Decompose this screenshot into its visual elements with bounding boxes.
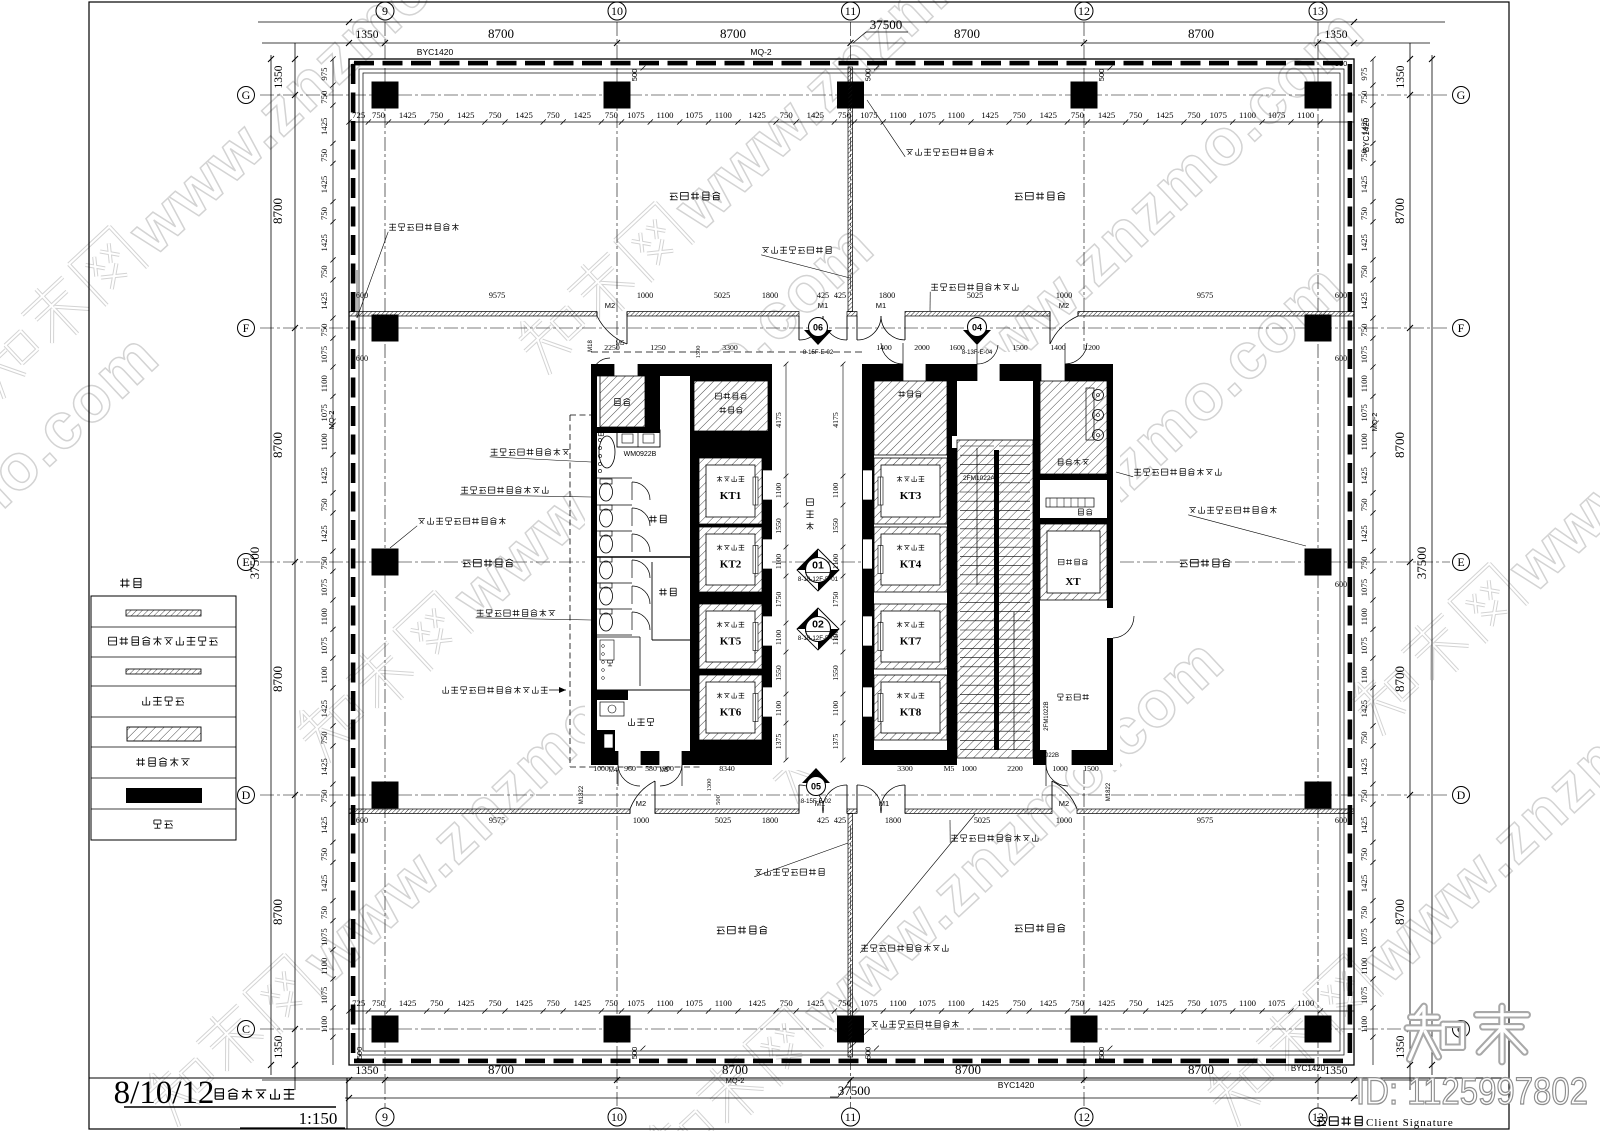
svg-text:1000: 1000 <box>593 764 609 773</box>
svg-text:1100: 1100 <box>1359 375 1369 393</box>
svg-text:1100: 1100 <box>319 666 329 684</box>
svg-text:1100: 1100 <box>1359 608 1369 626</box>
svg-text:D: D <box>1457 788 1466 802</box>
svg-text:750: 750 <box>488 110 502 120</box>
svg-text:750: 750 <box>372 998 386 1008</box>
svg-text:XT: XT <box>1065 576 1081 588</box>
svg-text:975: 975 <box>1359 68 1369 81</box>
svg-text:425: 425 <box>817 291 829 300</box>
svg-text:D: D <box>242 788 251 802</box>
svg-text:750: 750 <box>547 110 561 120</box>
svg-text:1550: 1550 <box>831 665 840 681</box>
svg-text:750: 750 <box>1359 556 1369 570</box>
svg-text:1425: 1425 <box>1359 176 1369 193</box>
svg-text:2FM1022A: 2FM1022A <box>963 475 995 482</box>
svg-text:750: 750 <box>1359 206 1369 220</box>
svg-text:1425: 1425 <box>807 110 824 120</box>
svg-text:1075: 1075 <box>685 998 702 1008</box>
svg-text:1100: 1100 <box>319 957 329 975</box>
svg-text:1075: 1075 <box>1268 110 1285 120</box>
svg-text:1425: 1425 <box>981 110 998 120</box>
svg-text:M1: M1 <box>818 301 828 310</box>
svg-text:500: 500 <box>1335 59 1348 68</box>
svg-text:1000: 1000 <box>633 816 649 825</box>
svg-text:600: 600 <box>356 354 368 363</box>
svg-text:1100: 1100 <box>774 630 783 645</box>
svg-text:1800: 1800 <box>885 816 901 825</box>
svg-text:750: 750 <box>1187 998 1201 1008</box>
svg-text:04: 04 <box>972 323 982 333</box>
svg-text:750: 750 <box>1359 847 1369 861</box>
svg-text:1425: 1425 <box>1359 758 1369 775</box>
svg-text:1100: 1100 <box>948 998 966 1008</box>
svg-text:900: 900 <box>662 764 674 773</box>
svg-text:BYC1420: BYC1420 <box>998 1080 1035 1090</box>
svg-text:1425: 1425 <box>457 998 474 1008</box>
svg-text:M1: M1 <box>876 301 886 310</box>
svg-text:1075: 1075 <box>319 579 329 596</box>
svg-text:8700: 8700 <box>1392 198 1407 224</box>
svg-text:600: 600 <box>1335 580 1347 589</box>
svg-text:1350: 1350 <box>273 1035 285 1058</box>
svg-text:750: 750 <box>319 265 329 279</box>
svg-text:1100: 1100 <box>1297 110 1315 120</box>
svg-text:1425: 1425 <box>319 700 329 717</box>
svg-text:8700: 8700 <box>1188 1062 1214 1077</box>
svg-text:1075: 1075 <box>918 110 935 120</box>
svg-text:1550: 1550 <box>831 518 840 534</box>
svg-text:1075: 1075 <box>1359 404 1369 421</box>
svg-text:960: 960 <box>624 764 636 773</box>
svg-text:1075: 1075 <box>627 998 644 1008</box>
svg-text:8-15F-E-02: 8-15F-E-02 <box>803 350 834 356</box>
svg-text:750: 750 <box>319 789 329 803</box>
svg-text:1350: 1350 <box>273 65 285 88</box>
svg-text:750: 750 <box>605 998 619 1008</box>
svg-text:1425: 1425 <box>319 292 329 309</box>
svg-text:1100: 1100 <box>1359 957 1369 975</box>
svg-text:8-10-12F-E-01: 8-10-12F-E-01 <box>798 576 839 583</box>
svg-text:1400: 1400 <box>876 343 892 352</box>
svg-text:500: 500 <box>715 795 722 805</box>
svg-text:750: 750 <box>1129 110 1143 120</box>
svg-text:1425: 1425 <box>515 110 532 120</box>
svg-text:1750: 1750 <box>774 592 783 608</box>
svg-text:5025: 5025 <box>967 291 983 300</box>
svg-text:1100: 1100 <box>1239 110 1257 120</box>
svg-text:1075: 1075 <box>1359 987 1369 1004</box>
svg-text:1100: 1100 <box>1359 666 1369 684</box>
svg-text:750: 750 <box>1071 998 1085 1008</box>
svg-text:1100: 1100 <box>1359 1015 1369 1033</box>
svg-text:8-15F-E-02: 8-15F-E-02 <box>801 799 832 805</box>
svg-text:MQ-2: MQ-2 <box>750 47 772 57</box>
svg-text:1075: 1075 <box>918 998 935 1008</box>
svg-text:12: 12 <box>1078 1110 1090 1124</box>
svg-text:1425: 1425 <box>319 758 329 775</box>
svg-text:M2: M2 <box>605 301 615 310</box>
svg-text:9575: 9575 <box>489 291 505 300</box>
svg-text:1100: 1100 <box>1359 433 1369 451</box>
svg-text:500: 500 <box>1097 1047 1106 1060</box>
svg-text:1100: 1100 <box>319 375 329 393</box>
svg-text:1000: 1000 <box>1056 291 1072 300</box>
svg-text:1425: 1425 <box>319 118 329 135</box>
svg-text:M2: M2 <box>636 799 646 808</box>
svg-text:750: 750 <box>319 556 329 570</box>
svg-text:750: 750 <box>488 998 502 1008</box>
svg-text:8340: 8340 <box>719 764 735 773</box>
svg-text:M2: M2 <box>1059 301 1069 310</box>
svg-text:KT8: KT8 <box>900 707 922 719</box>
svg-text:750: 750 <box>319 148 329 162</box>
svg-text:750: 750 <box>1013 998 1027 1008</box>
svg-text:1375: 1375 <box>831 734 840 750</box>
svg-text:8-10-12F-E-02: 8-10-12F-E-02 <box>798 635 839 642</box>
svg-text:M4: M4 <box>608 767 617 774</box>
svg-text:11: 11 <box>845 1110 857 1124</box>
svg-text:1100: 1100 <box>715 110 733 120</box>
svg-text:8700: 8700 <box>270 432 285 458</box>
svg-text:1100: 1100 <box>774 701 783 716</box>
svg-text:1425: 1425 <box>1359 875 1369 892</box>
svg-text:1800: 1800 <box>879 291 895 300</box>
svg-text:500: 500 <box>864 1047 873 1060</box>
svg-text:750: 750 <box>319 731 329 745</box>
svg-text:11: 11 <box>845 4 857 18</box>
svg-text:750: 750 <box>319 323 329 337</box>
svg-text:1100: 1100 <box>319 433 329 451</box>
svg-text:KT5: KT5 <box>720 636 742 648</box>
svg-text:750: 750 <box>780 998 794 1008</box>
svg-text:M5: M5 <box>944 764 955 773</box>
svg-text:750: 750 <box>1359 90 1369 104</box>
svg-text:WM0922B: WM0922B <box>624 451 657 458</box>
svg-text:M1822: M1822 <box>1106 782 1112 801</box>
svg-text:Client Signature: Client Signature <box>1366 1117 1454 1129</box>
svg-text:8700: 8700 <box>488 1062 514 1077</box>
svg-text:9575: 9575 <box>489 816 505 825</box>
svg-text:750: 750 <box>319 498 329 512</box>
svg-text:1000: 1000 <box>637 291 653 300</box>
svg-text:1425: 1425 <box>1359 525 1369 542</box>
svg-text:1425: 1425 <box>1359 817 1369 834</box>
svg-text:1075: 1075 <box>319 346 329 363</box>
svg-text:8700: 8700 <box>722 1062 748 1077</box>
svg-text:750: 750 <box>605 110 619 120</box>
svg-text:750: 750 <box>1359 905 1369 919</box>
svg-text:1000: 1000 <box>1056 816 1072 825</box>
svg-text:1100: 1100 <box>319 1015 329 1033</box>
svg-text:M1822: M1822 <box>579 785 585 804</box>
svg-text:600: 600 <box>1335 816 1347 825</box>
svg-text:1425: 1425 <box>1156 998 1173 1008</box>
svg-text:MQ-2: MQ-2 <box>1370 413 1379 432</box>
svg-text:1100: 1100 <box>889 110 907 120</box>
svg-text:8700: 8700 <box>1188 26 1214 41</box>
svg-text:1100: 1100 <box>1239 998 1257 1008</box>
svg-text:1500: 1500 <box>1083 764 1099 773</box>
svg-text:5025: 5025 <box>974 816 990 825</box>
svg-text:750: 750 <box>1071 110 1085 120</box>
svg-text:9575: 9575 <box>1197 816 1213 825</box>
svg-text:8700: 8700 <box>1392 666 1407 692</box>
svg-text:ID: 1125997802: ID: 1125997802 <box>1356 1071 1588 1113</box>
svg-text:1350: 1350 <box>356 29 379 41</box>
svg-text:750: 750 <box>1359 498 1369 512</box>
svg-text:750: 750 <box>319 847 329 861</box>
svg-text:750: 750 <box>1187 110 1201 120</box>
svg-text:1000: 1000 <box>1052 764 1068 773</box>
svg-text:1425: 1425 <box>1040 110 1057 120</box>
svg-text:9575: 9575 <box>1197 291 1213 300</box>
svg-text:KT6: KT6 <box>720 707 742 719</box>
svg-text:F: F <box>243 321 250 335</box>
svg-text:8/10/12: 8/10/12 <box>114 1075 215 1111</box>
svg-text:01: 01 <box>812 560 824 572</box>
svg-text:1425: 1425 <box>1040 998 1057 1008</box>
svg-text:750: 750 <box>319 905 329 919</box>
svg-text:8700: 8700 <box>720 26 746 41</box>
svg-text:G: G <box>242 88 251 102</box>
svg-text:1300: 1300 <box>706 779 713 792</box>
svg-text:06: 06 <box>813 323 823 333</box>
svg-text:1100: 1100 <box>831 701 840 716</box>
svg-text:BYC1420: BYC1420 <box>1362 117 1371 152</box>
svg-text:1:150: 1:150 <box>299 1109 338 1128</box>
svg-text:750: 750 <box>1359 789 1369 803</box>
svg-text:2FM1022B: 2FM1022B <box>1044 701 1050 730</box>
svg-text:1425: 1425 <box>1098 110 1115 120</box>
svg-text:1075: 1075 <box>1359 579 1369 596</box>
svg-text:1100: 1100 <box>656 110 674 120</box>
svg-text:5025: 5025 <box>714 291 730 300</box>
svg-text:1425: 1425 <box>748 110 765 120</box>
svg-text:1425: 1425 <box>1359 700 1369 717</box>
svg-text:8700: 8700 <box>1392 899 1407 925</box>
svg-text:9: 9 <box>382 4 388 18</box>
svg-text:9: 9 <box>382 1110 388 1124</box>
svg-text:1350: 1350 <box>1325 29 1348 41</box>
svg-text:1075: 1075 <box>1359 637 1369 654</box>
svg-text:8700: 8700 <box>270 198 285 224</box>
svg-text:37500: 37500 <box>870 17 903 32</box>
svg-text:8700: 8700 <box>954 26 980 41</box>
svg-text:F: F <box>1458 321 1465 335</box>
svg-text:500: 500 <box>1097 69 1106 82</box>
svg-text:2000: 2000 <box>914 343 930 352</box>
svg-text:1425: 1425 <box>399 998 416 1008</box>
svg-text:KT3: KT3 <box>900 490 922 502</box>
svg-text:4175: 4175 <box>831 412 840 428</box>
svg-text:750: 750 <box>1129 998 1143 1008</box>
svg-text:580: 580 <box>645 764 657 773</box>
svg-text:1100: 1100 <box>774 554 783 569</box>
svg-text:1075: 1075 <box>1268 998 1285 1008</box>
svg-text:1425: 1425 <box>319 176 329 193</box>
svg-text:425: 425 <box>834 816 846 825</box>
svg-text:1425: 1425 <box>319 467 329 484</box>
svg-text:1100: 1100 <box>656 998 674 1008</box>
svg-text:750: 750 <box>319 206 329 220</box>
svg-text:500: 500 <box>630 69 639 82</box>
svg-text:750: 750 <box>1359 323 1369 337</box>
svg-text:8700: 8700 <box>270 666 285 692</box>
svg-text:600: 600 <box>1335 291 1347 300</box>
svg-text:05: 05 <box>811 782 821 792</box>
svg-text:600: 600 <box>356 816 368 825</box>
svg-text:750: 750 <box>319 90 329 104</box>
svg-text:1550: 1550 <box>774 665 783 681</box>
svg-text:500: 500 <box>355 1047 364 1060</box>
svg-text:1000: 1000 <box>961 764 977 773</box>
svg-text:1400: 1400 <box>1050 343 1066 352</box>
svg-text:1425: 1425 <box>319 234 329 251</box>
svg-text:1350: 1350 <box>1325 1065 1348 1077</box>
svg-text:KT2: KT2 <box>720 559 742 571</box>
svg-text:750: 750 <box>1359 265 1369 279</box>
svg-text:10: 10 <box>611 4 623 18</box>
svg-text:500: 500 <box>630 1047 639 1060</box>
svg-text:1425: 1425 <box>515 998 532 1008</box>
svg-text:1425: 1425 <box>1098 998 1115 1008</box>
svg-text:1425: 1425 <box>399 110 416 120</box>
svg-text:1250: 1250 <box>650 343 666 352</box>
svg-text:MQ-2: MQ-2 <box>726 1076 745 1085</box>
svg-text:1550: 1550 <box>774 518 783 534</box>
svg-text:37500: 37500 <box>1414 547 1429 580</box>
svg-text:1075: 1075 <box>1359 928 1369 945</box>
svg-text:13: 13 <box>1312 4 1324 18</box>
svg-text:M5: M5 <box>615 340 624 347</box>
svg-text:FM1022B: FM1022B <box>1033 753 1059 759</box>
svg-text:1800: 1800 <box>762 816 778 825</box>
svg-text:750: 750 <box>430 998 444 1008</box>
svg-text:750: 750 <box>1359 731 1369 745</box>
svg-text:975: 975 <box>319 68 329 81</box>
svg-text:10: 10 <box>611 1110 623 1124</box>
svg-text:C: C <box>242 1022 250 1036</box>
svg-text:1075: 1075 <box>1210 998 1227 1008</box>
svg-text:1350: 1350 <box>1395 1035 1407 1058</box>
svg-text:750: 750 <box>547 998 561 1008</box>
svg-text:1075: 1075 <box>319 637 329 654</box>
svg-text:1425: 1425 <box>1359 292 1369 309</box>
svg-text:KT1: KT1 <box>720 490 741 502</box>
svg-text:1100: 1100 <box>319 608 329 626</box>
svg-text:1425: 1425 <box>1359 467 1369 484</box>
svg-text:E: E <box>1457 555 1464 569</box>
svg-text:KT4: KT4 <box>900 559 922 571</box>
svg-text:1075: 1075 <box>319 987 329 1004</box>
svg-text:1425: 1425 <box>457 110 474 120</box>
svg-text:M2: M2 <box>1059 799 1069 808</box>
svg-text:KT7: KT7 <box>900 636 922 648</box>
svg-text:1100: 1100 <box>889 998 907 1008</box>
svg-text:1800: 1800 <box>762 291 778 300</box>
svg-text:1100: 1100 <box>831 483 840 498</box>
svg-text:1425: 1425 <box>319 817 329 834</box>
svg-text:750: 750 <box>430 110 444 120</box>
svg-text:1075: 1075 <box>685 110 702 120</box>
svg-text:M18: M18 <box>588 340 594 352</box>
svg-text:1350: 1350 <box>1395 65 1407 88</box>
svg-text:37500: 37500 <box>247 547 262 580</box>
svg-text:G: G <box>1457 88 1466 102</box>
svg-text:1750: 1750 <box>831 592 840 608</box>
svg-text:1425: 1425 <box>981 998 998 1008</box>
svg-text:1350: 1350 <box>356 1065 379 1077</box>
svg-text:425: 425 <box>817 816 829 825</box>
svg-text:1075: 1075 <box>860 998 877 1008</box>
svg-text:1100: 1100 <box>715 998 733 1008</box>
svg-text:02: 02 <box>812 619 824 631</box>
svg-text:MQ-2: MQ-2 <box>327 411 336 430</box>
svg-text:1425: 1425 <box>319 525 329 542</box>
svg-text:2200: 2200 <box>1007 764 1023 773</box>
svg-text:600: 600 <box>1335 354 1347 363</box>
svg-text:1100: 1100 <box>948 110 966 120</box>
svg-text:1425: 1425 <box>807 998 824 1008</box>
svg-text:1075: 1075 <box>627 110 644 120</box>
svg-text:1425: 1425 <box>574 110 591 120</box>
svg-text:3300: 3300 <box>897 764 913 773</box>
svg-text:1600: 1600 <box>949 343 965 352</box>
svg-text:1100: 1100 <box>774 483 783 498</box>
svg-text:1425: 1425 <box>748 998 765 1008</box>
svg-text:1500: 1500 <box>1012 343 1028 352</box>
svg-text:12: 12 <box>1078 4 1090 18</box>
svg-text:750: 750 <box>1013 110 1027 120</box>
svg-text:1200: 1200 <box>1084 343 1100 352</box>
svg-text:8700: 8700 <box>955 1062 981 1077</box>
svg-text:8700: 8700 <box>488 26 514 41</box>
svg-text:1425: 1425 <box>574 998 591 1008</box>
svg-text:1075: 1075 <box>1210 110 1227 120</box>
svg-text:500: 500 <box>864 69 873 82</box>
svg-text:M1: M1 <box>879 799 889 808</box>
svg-text:4175: 4175 <box>774 412 783 428</box>
svg-text:1100: 1100 <box>1297 998 1315 1008</box>
svg-text:5025: 5025 <box>715 816 731 825</box>
svg-text:8700: 8700 <box>270 899 285 925</box>
svg-text:1075: 1075 <box>319 928 329 945</box>
svg-text:3300: 3300 <box>722 343 738 352</box>
svg-text:750: 750 <box>780 110 794 120</box>
svg-text:425: 425 <box>834 291 846 300</box>
svg-text:1425: 1425 <box>1156 110 1173 120</box>
svg-text:1425: 1425 <box>319 875 329 892</box>
svg-text:1075: 1075 <box>1359 346 1369 363</box>
svg-text:BYC1420: BYC1420 <box>417 47 454 57</box>
svg-text:1375: 1375 <box>774 734 783 750</box>
svg-text:750: 750 <box>372 110 386 120</box>
svg-text:8700: 8700 <box>1392 432 1407 458</box>
svg-text:1425: 1425 <box>1359 234 1369 251</box>
